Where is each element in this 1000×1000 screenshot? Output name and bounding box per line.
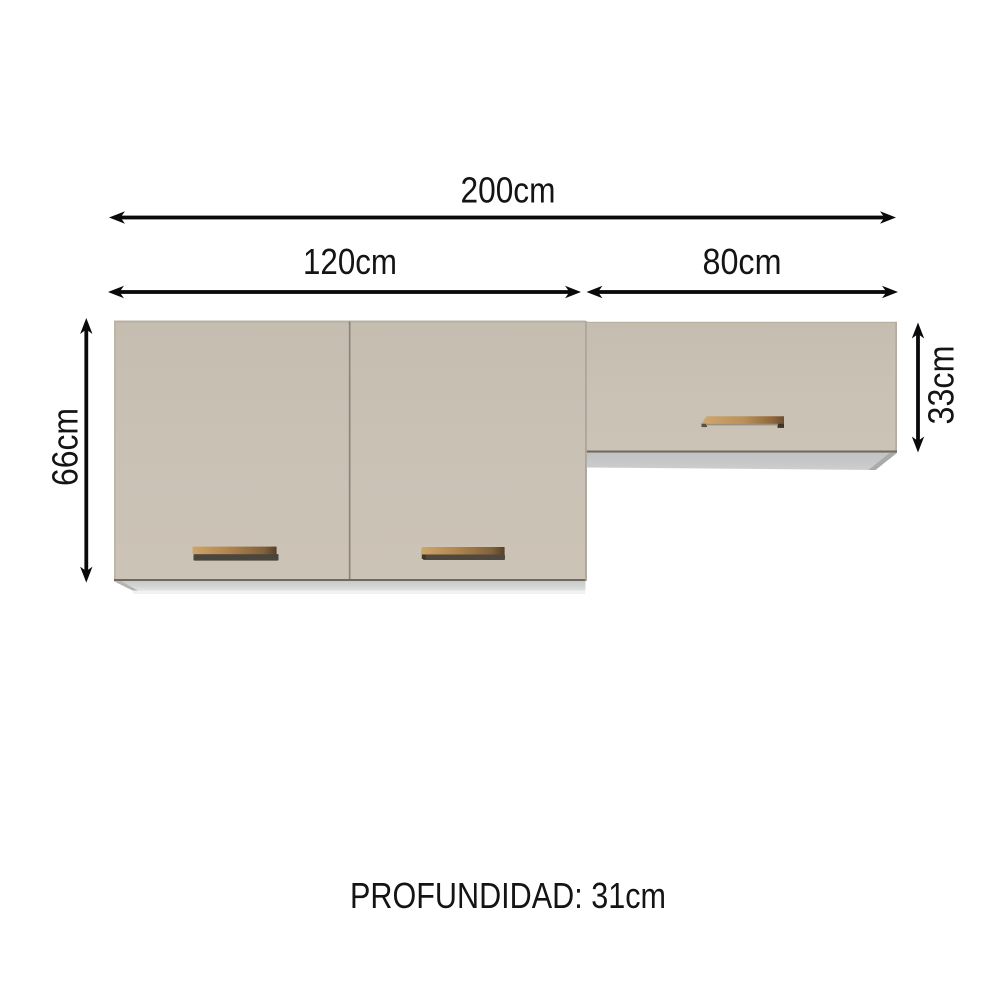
svg-text:PROFUNDIDAD: 31cm: PROFUNDIDAD: 31cm bbox=[350, 875, 666, 916]
svg-text:80cm: 80cm bbox=[703, 241, 782, 282]
svg-text:66cm: 66cm bbox=[45, 408, 86, 486]
svg-text:200cm: 200cm bbox=[461, 170, 556, 211]
svg-text:120cm: 120cm bbox=[303, 241, 397, 282]
svg-text:33cm: 33cm bbox=[921, 346, 962, 425]
